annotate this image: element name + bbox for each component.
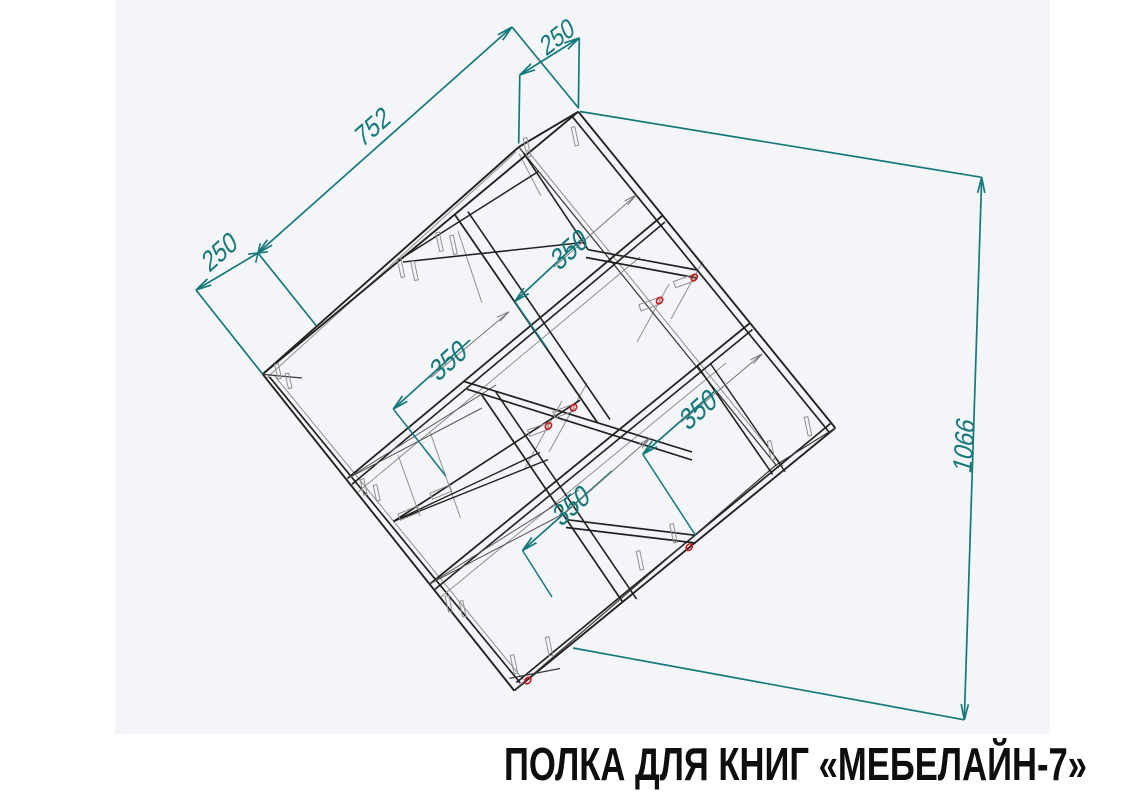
svg-text:ПОЛКА ДЛЯ КНИГ «МЕБЕЛАЙН-7»: ПОЛКА ДЛЯ КНИГ «МЕБЕЛАЙН-7» <box>504 738 1087 790</box>
svg-text:1066: 1066 <box>949 414 981 476</box>
